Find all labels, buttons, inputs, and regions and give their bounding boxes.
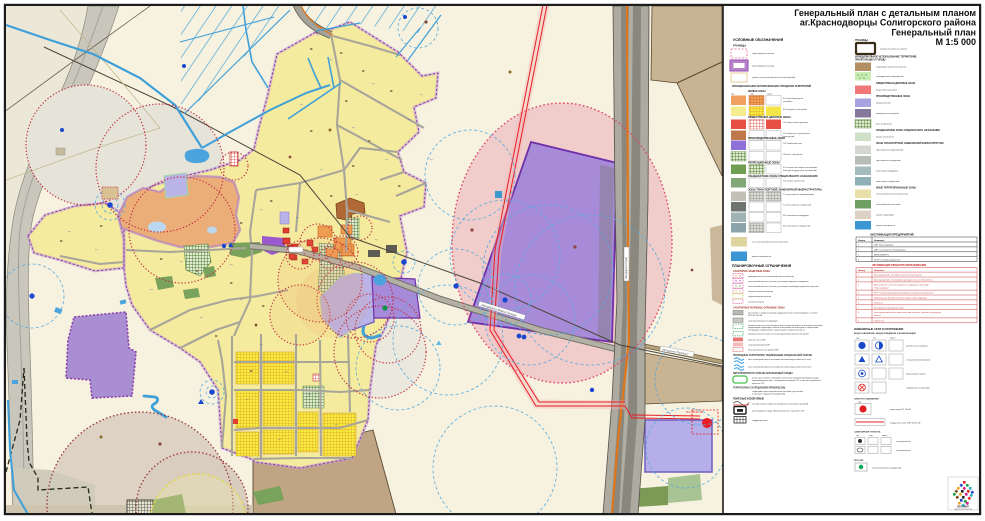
svg-text:объектов электроснабжения: объектов электроснабжения	[748, 291, 773, 293]
svg-text:воздушная линия ЛЭП 35-110 кВ: воздушная линия ЛЭП 35-110 кВ	[890, 423, 921, 425]
svg-text:проект.: проект.	[767, 94, 773, 96]
svg-text:С-1 сельскохозяйственные (пахо: С-1 сельскохозяйственные (пахотные)	[752, 241, 788, 244]
svg-text:РЕКРЕАЦИОННЫЕ ЗОНЫ: РЕКРЕАЦИОННЫЕ ЗОНЫ	[748, 161, 780, 164]
svg-text:ИНЖЕНЕРНЫЕ СЕТИ И СООРУЖЕНИЯ: ИНЖЕНЕРНЫЕ СЕТИ И СООРУЖЕНИЯ	[854, 327, 903, 331]
svg-text:охранная зона ЛЭП: охранная зона ЛЭП	[748, 340, 766, 342]
svg-text:з.у.: з.у.	[430, 159, 433, 161]
svg-text:з.у.: з.у.	[352, 127, 355, 129]
svg-text:ПРИРОДНЫЕ ТЕРРИТОРИИ, ПОДЛЕЖАЩ: ПРИРОДНЫЕ ТЕРРИТОРИИ, ПОДЛЕЖАЩИЕ СПЕЦИАЛ…	[733, 354, 813, 357]
svg-text:ПЛАНИРОВОЧНЫЕ ОГРАНИЧЕНИЯ: ПЛАНИРОВОЧНЫЕ ОГРАНИЧЕНИЯ	[732, 264, 792, 268]
svg-text:з.у.: з.у.	[246, 399, 249, 401]
svg-text:з.у.: з.у.	[385, 159, 388, 161]
svg-text:И-1 инженерных коридоров: И-1 инженерных коридоров	[783, 215, 809, 217]
svg-text:ПРОЧИЕ: ПРОЧИЕ	[854, 460, 864, 462]
svg-text:з.у.: з.у.	[296, 217, 299, 219]
svg-text:школа): школа)	[874, 315, 881, 317]
svg-text:з.у.: з.у.	[230, 264, 233, 266]
svg-text:Л-1 прочее озеленение: Л-1 прочее озеленение	[783, 181, 805, 183]
svg-text:проект.: проект.	[890, 338, 896, 340]
svg-text:месторождение торфа "Пронькост: месторождение торфа "Пронькостровское" п…	[752, 410, 804, 413]
svg-text:з.у.: з.у.	[95, 249, 98, 251]
svg-text:застройка: застройка	[783, 100, 793, 103]
svg-text:МЕРОПРИЯТИЯ ПО ОХРАНЕ ОКРУЖАЮЩ: МЕРОПРИЯТИЯ ПО ОХРАНЕ ОКРУЖАЮЩЕЙ СРЕДЫ	[733, 372, 793, 375]
svg-text:П-1 Промышленные: П-1 Промышленные	[783, 143, 803, 145]
svg-text:подстанция ПС 110 кВ: подстанция ПС 110 кВ	[890, 409, 911, 411]
svg-text:ПРИЛЕГАЮЩИХ К ГОРОДУ: ПРИЛЕГАЮЩИХ К ГОРОДУ	[855, 59, 886, 62]
svg-text:зоны санитарной охраны источни: зоны санитарной охраны источников питьев…	[748, 358, 812, 361]
svg-text:Название: Название	[874, 240, 885, 242]
svg-text:водные поверхности: водные поверхности	[752, 256, 771, 258]
svg-text:перепрофилирование) с сокращен: перепрофилирование) с сокращением размер…	[752, 379, 822, 382]
svg-text:объект, для которого необходим: объект, для которого необходимо выполнен…	[752, 377, 820, 380]
svg-text:прочие территории: прочие территории	[876, 215, 894, 217]
svg-text:ЗОНЫ ТРАНСПОРТНОЙ, ИНЖЕНЕРНОЙ: ЗОНЫ ТРАНСПОРТНОЙ, ИНЖЕНЕРНОЙ ИНФРАСТРУК…	[876, 142, 944, 145]
svg-text:ЭКСПЛИКАЦИЯ ОБЪЕКТОВ ОБСЛУЖИВА: ЭКСПЛИКАЦИЯ ОБЪЕКТОВ ОБСЛУЖИВАНИЯ	[872, 264, 926, 267]
svg-text:отсутствуют нарушения правил(С: отсутствуют нарушения правил(СОВ)	[752, 393, 785, 395]
svg-text:ПРОИЗВОДСТВЕННЫЕ ЗОНЫ: ПРОИЗВОДСТВЕННЫЕ ЗОНЫ	[876, 96, 911, 98]
svg-text:сельскохозяйственных объектов,: сельскохозяйственных объектов, для котор…	[748, 280, 809, 283]
svg-text:территории населенных пунктов: территории населенных пунктов	[876, 67, 906, 69]
svg-text:Фельдшерско-акушерский пункт: Фельдшерско-акушерский пункт	[874, 306, 904, 309]
svg-text:проектов СЗЗ: проектов СЗЗ	[752, 383, 765, 385]
svg-text:ОАО "Солигорская птицефабрика": ОАО "Солигорская птицефабрика"	[874, 249, 907, 252]
svg-text:общественно-деловые: общественно-деловые	[876, 90, 898, 92]
svg-text:водонапорная башня: водонапорная башня	[906, 374, 926, 376]
svg-text:граница сельскохозяйственных з: граница сельскохозяйственных земель(поле…	[752, 76, 796, 79]
svg-text:транспортных сооружений: транспортных сооружений	[876, 159, 901, 162]
svg-text:Ж-1 многоквартирная: Ж-1 многоквартирная	[783, 98, 803, 100]
svg-text:М 1:5 000: М 1:5 000	[935, 37, 976, 47]
svg-text:ГРАНИЦЫ: ГРАНИЦЫ	[733, 44, 746, 48]
svg-text:газорегуляторных пунктов: газорегуляторных пунктов	[748, 296, 771, 298]
svg-text:Номер: Номер	[858, 270, 866, 272]
svg-text:ЭКСПЛИКАЦИЯ ПРЕДПРИЯТИЙ: ЭКСПЛИКАЦИЯ ПРЕДПРИЯТИЙ	[870, 233, 914, 237]
svg-text:транспортных коммуникаций: транспортных коммуникаций	[876, 149, 903, 152]
svg-text:водные поверхности: водные поверхности	[876, 225, 895, 227]
svg-text:санитарный разрыв от водоводов: санитарный разрыв от водоводов	[748, 319, 778, 322]
svg-text:ЛАНДШАФТНЫЕ ЗОНЫ СПЕЦИАЛЬНОГО: ЛАНДШАФТНЫЕ ЗОНЫ СПЕЦИАЛЬНОГО НАЗНАЧЕНИЯ	[748, 175, 818, 178]
svg-text:САНИТАРНО-ЗАЩИТНЫЕ ЗОНЫ: САНИТАРНО-ЗАЩИТНЫЕ ЗОНЫ	[733, 270, 771, 273]
svg-text:лесохозяйственные земли: лесохозяйственные земли	[876, 203, 901, 206]
svg-text:ФУНКЦИОНАЛЬНОЕ ИСПОЛЬЗОВАНИЕ Т: ФУНКЦИОНАЛЬНОЕ ИСПОЛЬЗОВАНИЕ ТЕРРИТОРИЙ,	[855, 56, 917, 59]
svg-text:Т-2 транспортных сооружений: Т-2 транспортных сооружений	[783, 204, 811, 207]
svg-text:з.у.: з.у.	[330, 59, 333, 61]
svg-text:граница населенных пунктов: граница населенных пунктов	[880, 49, 907, 51]
svg-text:з.у.: з.у.	[335, 424, 338, 426]
svg-text:станция обезжелезивания: станция обезжелезивания	[906, 360, 930, 362]
svg-text:Генеральный план: Генеральный план	[891, 27, 976, 37]
svg-text:ГРАНИЦЫ: ГРАНИЦЫ	[855, 38, 868, 42]
svg-text:сооружения канализации: сооружения канализации	[906, 388, 930, 390]
svg-text:Ж-2 усадебная застройка: Ж-2 усадебная застройка	[783, 108, 808, 111]
svg-text:САНИТАРНАЯ ОЧИСТКА: САНИТАРНАЯ ОЧИСТКА	[854, 431, 881, 434]
svg-text:проект.: проект.	[882, 435, 888, 437]
svg-text:Генеральный план с детальным п: Генеральный план с детальным планом	[794, 8, 976, 18]
svg-text:з.у.: з.у.	[308, 394, 311, 396]
svg-text:ВОДОСНАБЖЕНИЕ, ВОДООТВЕДЕНИЕ И: ВОДОСНАБЖЕНИЕ, ВОДООТВЕДЕНИЕ И КАНАЛИЗАЦ…	[854, 332, 916, 335]
svg-text:Автодорога Слуцк: Автодорога Слуцк	[624, 256, 628, 279]
svg-text:Министерство сельского хозяйст: Министерство сельского хозяйства и продо…	[874, 283, 929, 286]
svg-text:промышленной: промышленной	[876, 102, 890, 105]
svg-text:зона ограничения застройки (ЛЭ: зона ограничения застройки (ЛЭП)	[748, 349, 779, 352]
svg-text:О-2 школьных и дошкольных: О-2 школьных и дошкольных	[783, 133, 810, 135]
svg-text:з.у.: з.у.	[278, 439, 281, 441]
svg-text:сельскохозяйственные (пахотные: сельскохозяйственные (пахотные)	[876, 193, 908, 196]
svg-text:зоны санитарной охраны источни: зоны санитарной охраны источников питьев…	[748, 366, 812, 369]
svg-text:артезианская скважина: артезианская скважина	[906, 346, 929, 348]
svg-text:з.у.: з.у.	[200, 317, 203, 319]
svg-text:КУП "Солигорский районный комб: КУП "Солигорский районный комбинат бытов…	[874, 292, 934, 295]
svg-text:ПРОИЗВОДСТВЕННЫЕ ЗОНЫ: ПРОИЗВОДСТВЕННЫЕ ЗОНЫ	[748, 137, 786, 140]
svg-text:(ЛЭП 35-110 кВ): (ЛЭП 35-110 кВ)	[748, 315, 762, 317]
svg-text:площадками, территориями, подл: площадками, территориями, подлежащими сп…	[748, 329, 805, 332]
svg-text:территории существующей жилой: территории существующей жилой застройки,…	[752, 390, 803, 393]
svg-text:сохр.: сохр.	[750, 94, 755, 96]
svg-text:з.у.: з.у.	[285, 371, 288, 373]
svg-text:ОБЩЕСТВЕННО-ДЕЛОВЫЕ ЗОНЫ: ОБЩЕСТВЕННО-ДЕЛОВЫЕ ЗОНЫ	[876, 83, 916, 85]
svg-text:з.у.: з.у.	[150, 289, 153, 291]
svg-text:П-4 мест погребения: П-4 мест погребения	[783, 154, 802, 156]
svg-text:з.у.: з.у.	[240, 299, 243, 301]
svg-text:ЭЛЕКТРОСНАБЖЕНИЕ: ЭЛЕКТРОСНАБЖЕНИЕ	[854, 398, 879, 401]
svg-text:рек.: рек.	[873, 338, 877, 340]
svg-text:з.у.: з.у.	[320, 169, 323, 171]
svg-text:ТЕРРИТОРИИ С НАРУШЕНИЕМ ПРАВИЛ: ТЕРРИТОРИИ С НАРУШЕНИЕМ ПРАВИЛ(СОВ)	[733, 387, 785, 390]
svg-text:сущ.: сущ.	[731, 94, 735, 96]
svg-text:САНИТАРНЫЕ РАЗРЫВЫ, ОХРАННЫЕ З: САНИТАРНЫЕ РАЗРЫВЫ, ОХРАННЫЕ ЗОНЫ	[733, 307, 785, 310]
svg-text:инженерных коридоров: инженерных коридоров	[876, 171, 898, 173]
svg-text:расстояние от крайнего провода: расстояние от крайнего провода воздушной…	[748, 311, 818, 314]
svg-text:з.у.: з.у.	[372, 83, 375, 85]
svg-text:УСЛОВНЫЕ ОБОЗНАЧЕНИЯ: УСЛОВНЫЕ ОБОЗНАЧЕНИЯ	[733, 38, 784, 42]
svg-text:торфоразработки: торфоразработки	[752, 419, 767, 422]
svg-text:з.у.: з.у.	[355, 194, 358, 196]
svg-text:Номер: Номер	[858, 240, 866, 242]
svg-text:ОАО "Краснодворцы": ОАО "Краснодворцы"	[874, 244, 894, 247]
svg-text:з.у.: з.у.	[300, 104, 303, 106]
svg-text:Краснодворский учебно-педагоги: Краснодворский учебно-педагогический ком…	[874, 311, 941, 314]
svg-text:БЕЛНИИП: БЕЛНИИП	[957, 506, 969, 509]
svg-text:ПОЛЕЗНЫЕ ИСКОПАЕМЫЕ: ПОЛЕЗНЫЕ ИСКОПАЕМЫЕ	[733, 398, 765, 401]
svg-text:ЗОНЫ ТРАНСПОРТНОЙ, ИНЖЕНЕРНОЙ: ЗОНЫ ТРАНСПОРТНОЙ, ИНЖЕНЕРНОЙ ИНФРАСТРУК…	[748, 188, 822, 191]
svg-text:граница горного отвода месторо: граница горного отвода месторождения гли…	[752, 403, 808, 406]
svg-text:ПСУП "Солигорскводоканал": ПСУП "Солигорскводоканал"	[874, 259, 901, 261]
svg-text:сущ.: сущ.	[858, 402, 862, 404]
svg-text:садоводческие товарищества: садоводческие товарищества	[876, 76, 905, 78]
svg-text:мест погребения: мест погребения	[876, 124, 892, 126]
svg-text:"Краснодворцы": "Краснодворцы"	[874, 287, 889, 289]
svg-text:Р-1 озеленение общего пользова: Р-1 озеленение общего пользования	[783, 167, 817, 169]
svg-text:сельскохозяйственных объектов,: сельскохозяйственных объектов, для котор…	[748, 285, 819, 288]
svg-text:ФУНКЦИОНАЛЬНОЕ ИСПОЛЬЗОВАНИЕ Г: ФУНКЦИОНАЛЬНОЕ ИСПОЛЬЗОВАНИЕ ГОРОДСКИХ Т…	[732, 85, 811, 88]
svg-text:Краснодворский сельский Дом ку: Краснодворский сельский Дом культуры, Се…	[874, 279, 933, 282]
svg-text:коммунально-складской: коммунально-складской	[876, 112, 899, 115]
svg-text:з.у.: з.у.	[180, 261, 183, 263]
svg-text:склад минеральных удобрений: склад минеральных удобрений	[872, 467, 901, 470]
svg-text:з.у.: з.у.	[68, 231, 71, 233]
svg-text:сохр.: сохр.	[869, 435, 874, 437]
svg-text:скотомогильников: скотомогильников	[748, 301, 764, 303]
svg-text:инженерных сооружений: инженерных сооружений	[876, 180, 899, 183]
svg-text:Название: Название	[874, 270, 885, 272]
svg-text:Белпочта: Белпочта	[874, 302, 884, 304]
svg-text:ИНЫЕ ТЕРРИТОРИАЛЬНЫЕ ЗОНЫ: ИНЫЕ ТЕРРИТОРИАЛЬНЫЕ ЗОНЫ	[876, 187, 917, 190]
svg-text:Приход храма Преображения Госп: Приход храма Преображения Господня аг.Кр…	[874, 298, 928, 300]
svg-text:О-1 общественно-деловые: О-1 общественно-деловые	[783, 122, 809, 124]
svg-text:Родник 1уч: Родник 1уч	[874, 320, 884, 322]
svg-text:минимальное расстояние от ОС д: минимальное расстояние от ОС до окружающ…	[748, 332, 809, 335]
svg-text:Краснодворский сельский исполн: Краснодворский сельский исполнительный к…	[874, 274, 922, 277]
svg-text:Т-1 транспортных коммуникаций: Т-1 транспортных коммуникаций	[783, 193, 814, 196]
svg-text:сущ.: сущ.	[856, 435, 860, 437]
svg-text:И-2 инженерных сооружений: И-2 инженерных сооружений	[783, 225, 810, 228]
svg-text:МИНСКЭНЕРГО: МИНСКЭНЕРГО	[874, 255, 890, 257]
svg-text:скотомогильник: скотомогильник	[896, 450, 911, 452]
svg-text:(высадка и укрупнение насажден: (высадка и укрупнение насаждений)	[783, 169, 817, 172]
svg-text:скотомогильник: скотомогильник	[896, 441, 911, 443]
svg-text:существующая граница: существующая граница	[752, 53, 775, 55]
svg-text:сущ.: сущ.	[856, 338, 860, 340]
svg-text:з.у.: з.у.	[260, 209, 263, 211]
svg-text:санитарный разрыв ЛЭП: санитарный разрыв ЛЭП	[748, 344, 771, 347]
svg-text:производственных, сельскохозяй: производственных, сельскохозяйственных о…	[748, 275, 794, 278]
svg-text:з.у.: з.у.	[420, 94, 423, 96]
svg-text:ОБЩЕСТВЕННО-ДЕЛОВЫЕ ЗОНЫ: ОБЩЕСТВЕННО-ДЕЛОВЫЕ ЗОНЫ	[748, 116, 791, 119]
svg-text:з.у.: з.у.	[375, 239, 378, 241]
svg-text:з.у.: з.у.	[408, 119, 411, 121]
svg-text:проектируемая граница: проектируемая граница	[752, 66, 775, 68]
svg-text:з.у.: з.у.	[260, 344, 263, 346]
svg-text:прочее озеленение: прочее озеленение	[876, 137, 895, 139]
svg-text:аг.Краснодворцы Солигорского р: аг.Краснодворцы Солигорского района	[800, 18, 977, 28]
svg-text:ЛАНДШАФТНЫЕ ЗОНЫ СПЕЦИАЛЬНОГО: ЛАНДШАФТНЫЕ ЗОНЫ СПЕЦИАЛЬНОГО НАЗНАЧЕНИЯ	[876, 129, 940, 132]
